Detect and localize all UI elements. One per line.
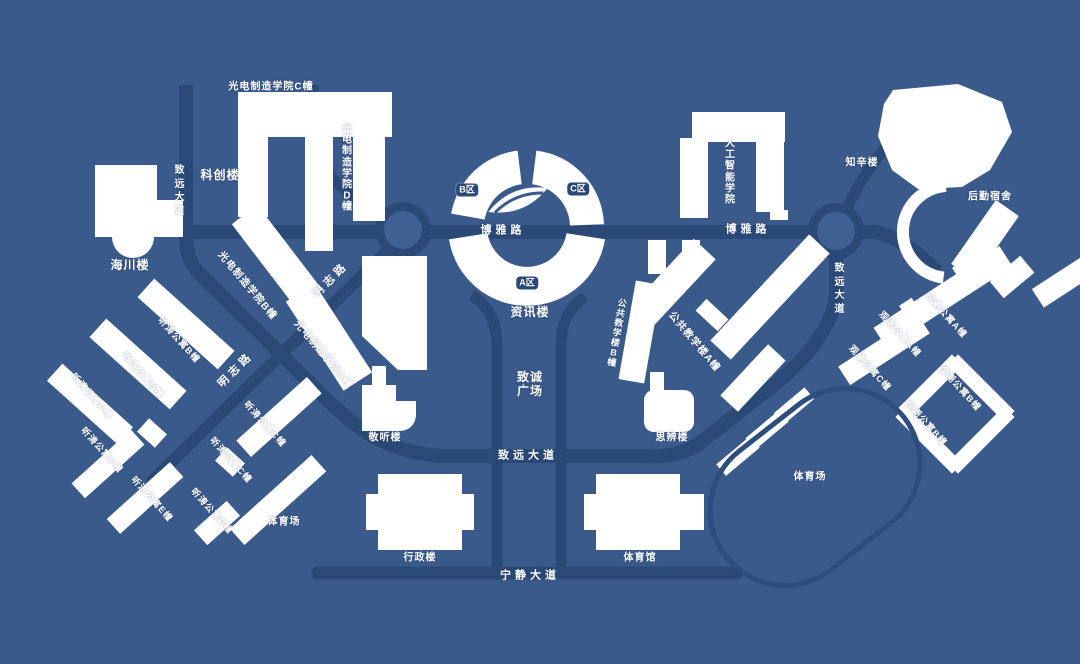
label-ningjing-dadao: 宁静大道	[500, 570, 560, 583]
campus-map: 光电制造学院C幢光电制造学院D幢科创楼致远大道海川楼光电制造学院B幢明志路明志路…	[0, 0, 1080, 664]
label-kechuang: 科创楼	[200, 169, 239, 183]
label-rengong-zhineng: 人工智能学院	[725, 138, 735, 205]
label-tingtao-e: 听涛公寓E幢	[129, 474, 175, 523]
label-boya-lu-1: 博雅路	[481, 225, 526, 238]
label-jingting: 敬听楼	[369, 432, 402, 444]
label-zixun: 资讯楼	[510, 306, 549, 320]
label-zhiyuan-dadao-center: 致远大道	[498, 450, 558, 463]
label-guanchao-c: 观潮公寓C幢	[847, 343, 893, 393]
label-zhicheng-guangchang: 致诚 广场	[517, 371, 543, 399]
label-tingtao-c2: 听涛公寓C幢	[208, 435, 254, 485]
label-guangdian-a: 光电制造学院A幢	[291, 319, 355, 392]
label-tingtao-d: 听涛公寓D幢	[189, 486, 235, 536]
label-zone-c: C区	[567, 183, 589, 196]
label-houqin-sushe: 后勤宿舍	[968, 191, 1012, 203]
label-gongjiao-a: 公共教学楼A幢	[666, 310, 723, 374]
label-tingtao-a1: 听涛公寓A幢	[69, 371, 115, 421]
label-gongjiao-b: 公共教学楼B幢	[606, 297, 627, 368]
label-tingtao-a2: 听涛公寓A幢	[79, 425, 125, 475]
label-guangdian-c: 光电制造学院C幢	[228, 81, 313, 93]
label-layer: 光电制造学院C幢光电制造学院D幢科创楼致远大道海川楼光电制造学院B幢明志路明志路…	[0, 0, 1080, 664]
label-zhiyuan-dadao-left: 致远大道	[175, 164, 186, 218]
label-mingzhi-lu-2: 明志路	[216, 350, 257, 391]
label-haichuan: 海川楼	[110, 259, 149, 273]
label-zhiyuan-dadao-right: 致远大道	[835, 262, 846, 316]
label-guangdian-b: 光电制造学院B幢	[215, 250, 279, 323]
label-guangdian-d: 光电制造学院D幢	[342, 123, 352, 213]
label-xingzheng: 行政楼	[404, 552, 437, 564]
label-zhixin: 知辛楼	[846, 157, 879, 169]
label-tiyuchang-left: 体育场	[268, 516, 301, 528]
label-tingtao-b1: 听涛公寓B幢	[156, 315, 202, 365]
label-guanchao-a2: 观潮公寓A幢	[877, 309, 923, 359]
label-boya-lu-2: 博雅路	[726, 224, 771, 237]
label-zone-a: A区	[516, 277, 538, 290]
label-guanchao-a1: 观潮公寓A幢	[923, 290, 969, 340]
label-tingtao-c1: 听涛公寓C幢	[242, 399, 288, 449]
label-tiyuguan: 体育馆	[624, 552, 657, 564]
label-tiyuchang-right: 体育场	[794, 471, 827, 483]
label-guanchao-b2: 观潮公寓B幢	[903, 398, 949, 448]
label-tingtao-b2: 听涛公寓B幢	[120, 350, 166, 400]
label-mingzhi-lu-1: 明志路	[311, 260, 352, 301]
label-zone-b: B区	[456, 184, 478, 197]
label-sibian: 思辨楼	[656, 432, 689, 444]
label-guanchao-b1: 观潮公寓B幢	[937, 363, 983, 413]
